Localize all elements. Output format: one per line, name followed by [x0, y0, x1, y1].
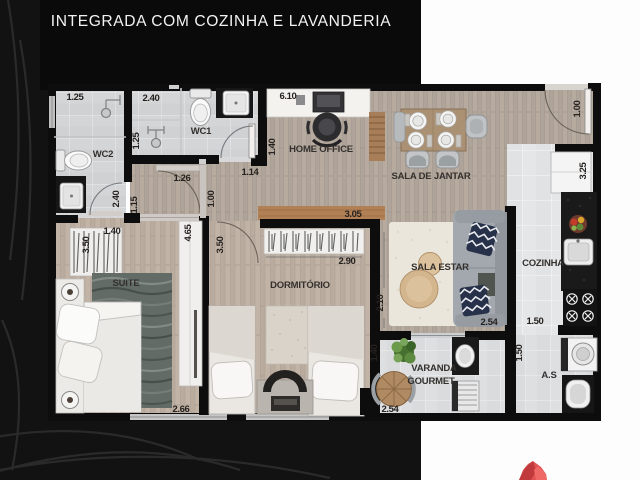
svg-text:2.10: 2.10 [375, 294, 386, 311]
svg-text:3.25: 3.25 [578, 161, 589, 179]
svg-text:COZINHA: COZINHA [522, 258, 564, 269]
svg-text:1.50: 1.50 [514, 344, 525, 361]
svg-text:1.40: 1.40 [267, 138, 278, 155]
svg-text:SALA DE JANTAR: SALA DE JANTAR [391, 171, 470, 182]
svg-text:2.54: 2.54 [481, 317, 499, 328]
svg-text:1.14: 1.14 [242, 167, 260, 178]
svg-text:2.54: 2.54 [382, 404, 400, 415]
svg-text:INTEGRADA COM COZINHA E LAVAND: INTEGRADA COM COZINHA E LAVANDERIA [51, 13, 391, 30]
svg-text:1.25: 1.25 [131, 131, 142, 149]
svg-text:6.10: 6.10 [280, 91, 297, 102]
svg-text:1.40: 1.40 [104, 226, 121, 237]
svg-text:3.50: 3.50 [81, 236, 92, 253]
svg-text:WC1: WC1 [191, 126, 212, 137]
svg-text:2.40: 2.40 [143, 93, 160, 104]
svg-text:SUITE: SUITE [113, 278, 140, 289]
svg-text:GOURMET: GOURMET [407, 376, 455, 387]
svg-text:3.50: 3.50 [215, 236, 226, 253]
svg-text:1.50: 1.50 [527, 316, 544, 327]
svg-text:VARANDA: VARANDA [411, 363, 457, 374]
svg-text:2.40: 2.40 [111, 190, 122, 207]
svg-text:1.15: 1.15 [129, 195, 140, 213]
svg-text:1.26: 1.26 [174, 173, 191, 184]
svg-text:3.05: 3.05 [345, 209, 363, 220]
svg-text:WC2: WC2 [93, 149, 114, 160]
svg-text:1.00: 1.00 [572, 100, 583, 117]
svg-text:2.66: 2.66 [173, 404, 190, 415]
svg-text:1.25: 1.25 [67, 92, 85, 103]
svg-text:1.00: 1.00 [206, 190, 217, 207]
svg-text:HOME OFFICE: HOME OFFICE [289, 144, 353, 155]
svg-text:A.S: A.S [541, 370, 556, 381]
svg-text:1.40: 1.40 [369, 344, 380, 361]
svg-text:DORMITÓRIO: DORMITÓRIO [270, 279, 330, 291]
svg-text:4.65: 4.65 [183, 223, 194, 241]
svg-text:2.90: 2.90 [339, 256, 356, 267]
svg-text:SALA ESTAR: SALA ESTAR [411, 262, 469, 273]
